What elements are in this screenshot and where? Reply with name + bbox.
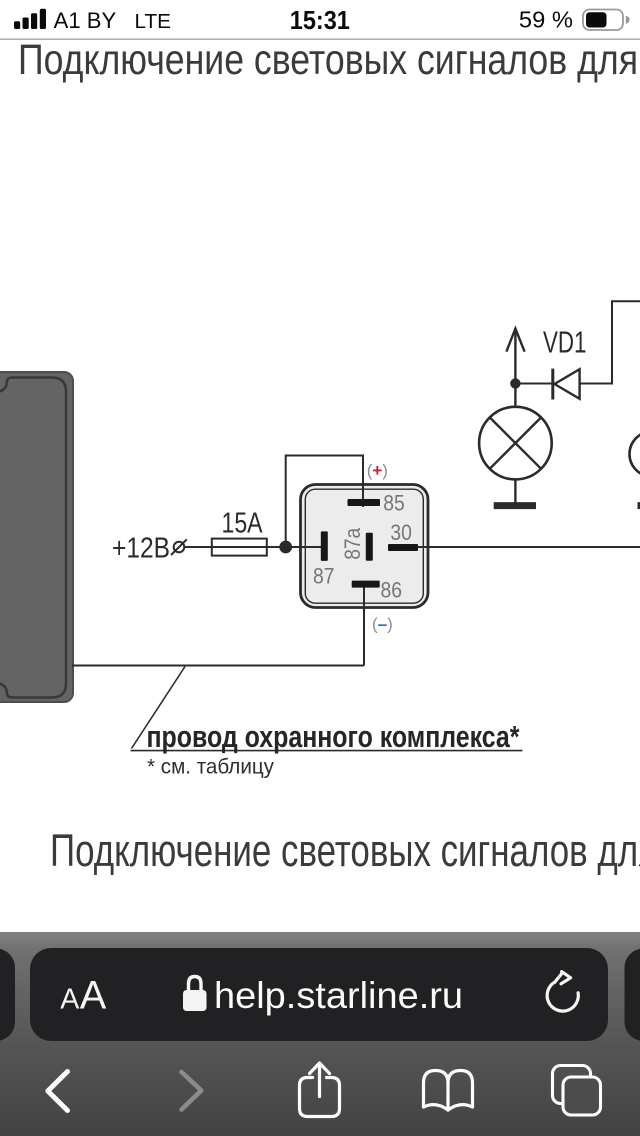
svg-text:+12В: +12В: [112, 533, 170, 565]
svg-text:15A: 15A: [222, 508, 264, 540]
svg-text:провод охранного комплекса*: провод охранного комплекса*: [147, 720, 520, 754]
svg-text:85: 85: [383, 490, 405, 515]
svg-text:A: A: [60, 984, 80, 1016]
svg-text:A: A: [80, 974, 107, 1018]
svg-text:15:31: 15:31: [290, 5, 350, 35]
svg-text:87: 87: [313, 563, 335, 588]
svg-text:(–): (–): [372, 614, 393, 633]
svg-text:30: 30: [390, 520, 412, 545]
svg-text:87a: 87a: [340, 527, 365, 559]
svg-text:59 %: 59 %: [519, 6, 573, 32]
svg-text:86: 86: [381, 578, 403, 603]
svg-text:* см. таблицу: * см. таблицу: [147, 756, 274, 779]
svg-text:Подключение световых сигналов: Подключение световых сигналов для: [50, 825, 640, 876]
svg-text:(+): (+): [367, 461, 388, 480]
svg-text:help.starline.ru: help.starline.ru: [214, 975, 463, 1016]
svg-text:Подключение световых сигналов: Подключение световых сигналов для: [18, 36, 638, 84]
svg-text:LTE: LTE: [135, 11, 172, 33]
svg-text:VD1: VD1: [543, 325, 587, 360]
svg-text:A1 BY: A1 BY: [54, 8, 117, 33]
